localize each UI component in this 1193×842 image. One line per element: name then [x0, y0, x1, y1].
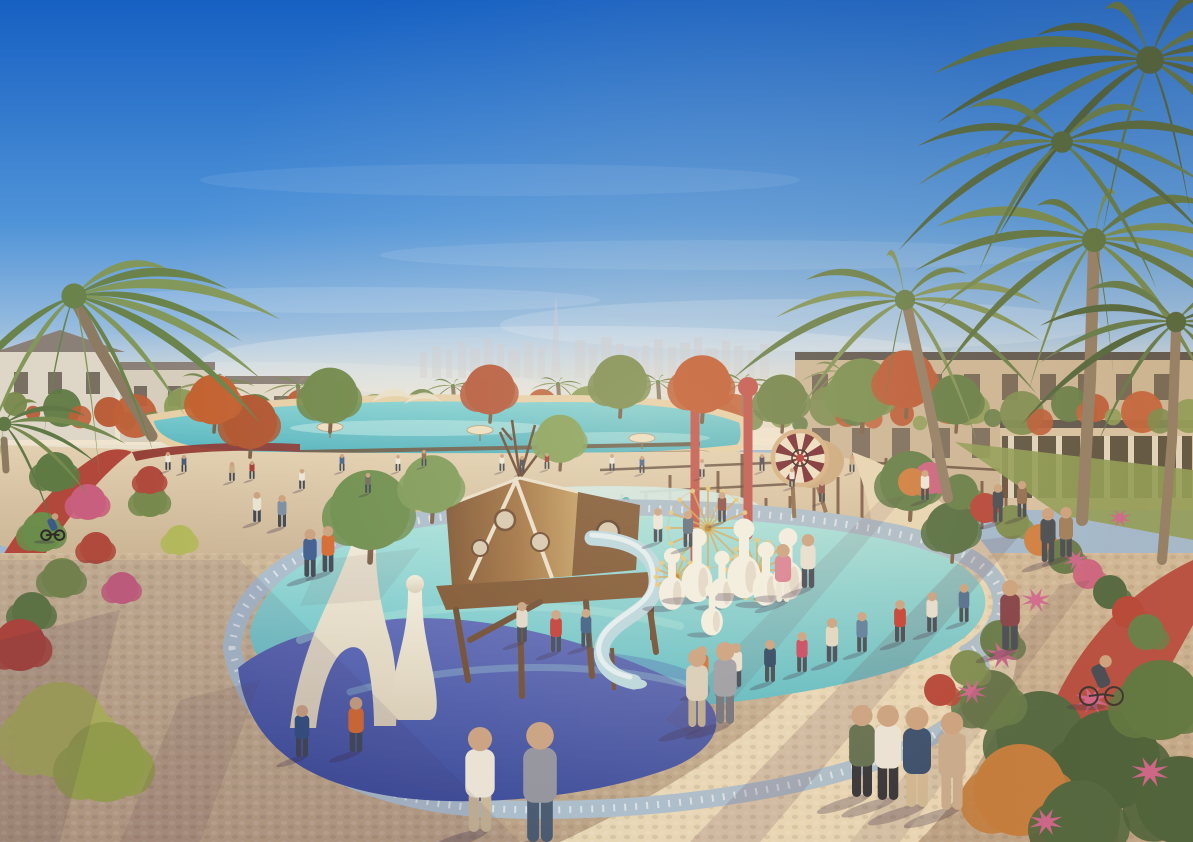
park-rendering [0, 0, 1193, 842]
scene-canvas [0, 0, 1193, 842]
lighting-overlay [0, 0, 1193, 842]
